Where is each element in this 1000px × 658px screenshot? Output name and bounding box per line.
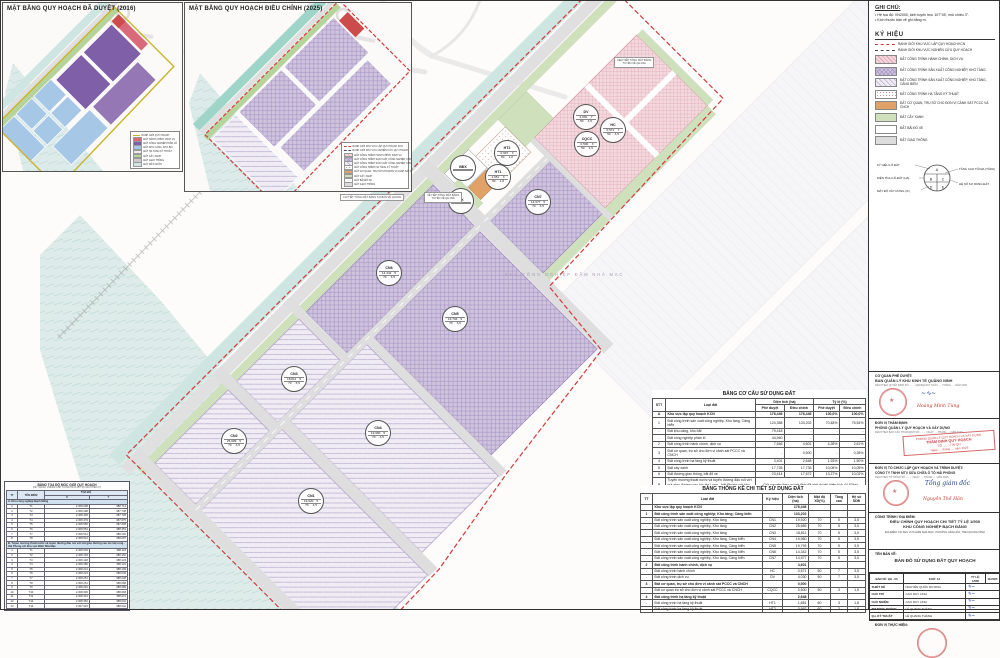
diagram-label-density: MẬT ĐỘ XÂY DỰNG (%) <box>877 188 910 193</box>
approving-agency-name: BAN QUẢN LÝ KHU KINH TẾ QUẢNG NINH <box>875 379 995 383</box>
legend-label: RANH GIỚI QUY HOẠCH <box>142 134 170 137</box>
approval-signer-name: Hoàng Minh Tùng <box>917 404 959 409</box>
legend-label: ĐẤT CÔNG TRÌNH SẢN XUẤT CÔNG NGHIỆP, KHO… <box>355 158 413 161</box>
legend-label: ĐẤT BÃI ĐỖ XE <box>900 127 923 131</box>
legend-label: RANH GIỚI KHU VỰC NGHIÊN CỨU QUY HOẠCH <box>353 149 409 152</box>
lot-far: 1,8 <box>509 156 513 160</box>
study-area-label: KHU CÔNG NGHIỆP ĐẦM NHÀ MẠC <box>505 272 624 277</box>
inset-2016: MẶT BẰNG QUY HOẠCH ĐÃ DUYỆT (2016) <box>2 2 183 172</box>
legend-label: ĐẤT CÔNG TRÌNH SẢN XUẤT CÔNG NGHIỆP, KHO… <box>355 162 413 165</box>
lot-circle: CN1 19,9205 703,5 <box>298 488 324 514</box>
legend-row: ĐẤT CÔNG TRÌNH HÀNH CHÍNH, DỊCH VỤ <box>875 55 995 64</box>
project-block: CÔNG TRÌNH / ĐỊA ĐIỂM: ĐIỀU CHỈNH QUY HO… <box>869 512 1000 549</box>
lot-density: 70 <box>449 322 452 326</box>
appraisal-unit-heading: ĐƠN VỊ THẨM ĐỊNH: <box>875 421 995 425</box>
lot-circle: DV 4,0307 503,5 <box>573 104 599 130</box>
lot-circle: CN3 18,8115 703,5 <box>281 366 307 392</box>
legend-swatch <box>875 136 897 145</box>
legend-label: ĐẤT GIAO THÔNG <box>355 183 376 186</box>
project-location: ĐỊA ĐIỂM: TẠI KHU VỰC ĐẦM NHÀ MẠC, PHƯỜN… <box>875 531 995 534</box>
coord-row: 13 T13 2.307.915 388.042 <box>7 604 128 609</box>
legend-label: ĐẤT GIAO THÔNG <box>900 139 928 143</box>
legend-label: ĐẤT BÃI ĐỖ XE <box>355 179 372 182</box>
signature-row: Q.L KỸ THUẬT LÊ QUANG THÀNH ✎~ <box>870 612 1000 619</box>
legend-swatch <box>875 55 897 64</box>
legend-row: ĐẤT CÔNG TRÌNH HẠ TẦNG KỸ THUẬT <box>875 90 995 99</box>
lot-circle: CN5 19,7935 703,5 <box>442 306 468 332</box>
coordinate-table: BẢNG TỌA ĐỘ MỐC GIỚI QUY HOẠCH (HỆ TỌA Đ… <box>4 481 130 611</box>
lot-far: 3,5 <box>391 276 395 280</box>
meta-date: 11/2025 <box>986 574 1000 584</box>
inset-2016-legend: RANH GIỚI QUY HOẠCH ĐẤT HÀNH CHÍNH, DỊCH… <box>130 131 180 170</box>
legend-swatch <box>133 162 142 167</box>
legend-label: ĐẤT CƠ QUAN, TRỤ SỞ CHO ĐƠN VỊ CẢNH SÁT … <box>355 170 413 173</box>
lot-far: 1,5 <box>589 147 593 151</box>
h-heso: Hệ số SDĐ <box>848 494 866 505</box>
submitting-unit-note: KÈM THEO TỜ TRÌNH SỐ: ........ NGÀY ....… <box>875 476 995 479</box>
h-tt: TT <box>641 494 653 505</box>
legend-row: ĐẤT GIAO THÔNG <box>344 182 406 186</box>
lot-far: 3,5 <box>540 205 544 209</box>
callout-line2: TUYẾN VỀ QH-03A <box>617 62 651 65</box>
lot-density: 70 <box>228 444 231 448</box>
legend-swatch <box>875 90 897 99</box>
signature-row: TRƯỞNG PHÒNG LÊ QUANG THÀNH ✎~ <box>870 605 1000 612</box>
meta-paper: KHỔ: A1 <box>904 574 966 584</box>
legend-label: ĐẤT KHU CẢNG, KHO BÃI <box>144 146 173 149</box>
legend-label: ĐẤT GIAO THÔNG <box>144 159 165 162</box>
h-tangcao: Tầng cao <box>831 494 848 505</box>
diagram-label-symbol: KÝ HIỆU LÔ ĐẤT <box>877 162 900 167</box>
lot-circle: BĐX <box>450 155 476 181</box>
legend-label: ĐẤT CÂY XANH <box>355 175 373 178</box>
legend-label: ĐẤT CÔNG TRÌNH SẢN XUẤT CÔNG NGHIỆP, KHO… <box>900 69 986 73</box>
h-loaidat: Loại đất <box>666 399 756 412</box>
approval-signature: ~∿~ <box>921 390 936 397</box>
h-kyhieu: Ký hiệu <box>763 494 783 505</box>
legend-title: KÝ HIỆU <box>875 31 995 40</box>
lot-density: 70 <box>305 504 308 508</box>
submitting-unit-name: CÔNG TY TNHH MTV SỬA CHỮA Ô TÔ HẢI PHÒNG <box>875 471 995 475</box>
coord-h-ten: TÊN ĐIỂM <box>18 491 45 500</box>
approving-agency-note: KÈM THEO QUYẾT ĐỊNH SỐ: ......../QĐ-BQLK… <box>875 384 995 387</box>
h-matdo: Mật độ XD(%) <box>809 494 831 505</box>
planning-drawing-sheet: { "notes": { "title": "GHI CHÚ:", "items… <box>0 0 1000 610</box>
stamp-star-icon: ★ <box>889 397 894 404</box>
legend-row: RANH GIỚI KHU VỰC LẬP QUY HOẠCH KCN <box>875 43 995 47</box>
note-units: • Kích thước bản vẽ ghi bằng m. <box>875 18 995 23</box>
legend-row: ĐẤT CÔNG TRÌNH SẢN XUẤT CÔNG NGHIỆP, KHO… <box>875 78 995 87</box>
inset-2025: MẶT BẰNG QUY HOẠCH ĐIỀU CHỈNH (2025) RAN… <box>184 2 412 192</box>
legend-row: RANH GIỚI KHU VỰC NGHIÊN CỨU QUY HOẠCH <box>875 49 995 53</box>
submitting-unit-heading: ĐƠN VỊ TỔ CHỨC LẬP QUY HOẠCH VÀ TRÌNH DU… <box>875 466 995 470</box>
diagram-label-floors: TẦNG CAO TỐI ĐA (TẦNG) <box>959 166 995 171</box>
implementing-unit-stamp <box>917 628 947 658</box>
h-stt: STT <box>653 399 666 412</box>
legend-swatch <box>875 67 897 76</box>
structure-row: 1 Đất công trình sản xuất công nghiệp, K… <box>653 418 866 429</box>
lot-far: 3,5 <box>236 444 240 448</box>
lot-circle: CQCC 0,5003 501,5 <box>574 131 600 157</box>
lot-density: 70 <box>383 276 386 280</box>
legend-swatch <box>344 182 353 187</box>
meta-scale: TỶ LỆ: 1/500 <box>966 574 986 584</box>
legend-label: ĐẤT CÔNG TRÌNH HÀNH CHÍNH, DỊCH VỤ <box>900 58 963 62</box>
h-dt: Diện tích (ha) <box>783 494 809 505</box>
appraisal-unit-name: PHÒNG QUẢN LÝ QUY HOẠCH VÀ XÂY DỰNG <box>875 426 995 430</box>
legend-label: ĐẤT HÀNH CHÍNH, DỊCH VỤ <box>144 138 176 141</box>
legend-row: ĐẤT CÂY XANH <box>875 113 995 122</box>
legend-row: ĐẤT CÔNG TRÌNH SẢN XUẤT CÔNG NGHIỆP, KHO… <box>875 67 995 76</box>
signature-table-block: BẢN VẼ: QH - 03 KHỔ: A1 TỶ LỆ: 1/500 11/… <box>869 572 1000 620</box>
legend-label: RANH GIỚI KHU VỰC NGHIÊN CỨU QUY HOẠCH <box>898 49 972 53</box>
map-callout: VỀ TIẾP TỔNG MẶT BẰNG TUYẾN VỀ QH-03A <box>424 192 462 203</box>
diagram-letter-d: D <box>930 185 933 189</box>
drawing-name-heading: TÊN BẢN VẼ: <box>875 552 995 556</box>
legend-row: RANH GIỚI KHU VỰC LẬP QUY HOẠCH KCN <box>344 145 406 149</box>
lot-symbol-diagram: KÝ HIỆU LÔ ĐẤT DIỆN TÍCH LÔ ĐẤT (HA) MẬT… <box>875 152 995 204</box>
lot-density: 50 <box>580 120 583 124</box>
lot-circle: CN7 14,9775 703,5 <box>525 189 551 215</box>
lot-far: 3,5 <box>615 133 619 137</box>
inset-2025-legend: RANH GIỚI KHU VỰC LẬP QUY HOẠCH KCN RANH… <box>341 142 409 189</box>
lot-circle: CN4 19,9605 703,5 <box>365 420 391 446</box>
lot-circle: HT2 0,9973 601,8 <box>494 140 520 166</box>
legend-swatch <box>875 50 895 51</box>
legend-row: ĐẤT GIAO THÔNG <box>875 136 995 145</box>
meta-drawing-no: BẢN VẼ: QH - 03 <box>870 574 904 584</box>
legend-swatch <box>875 125 897 134</box>
inset-2025-note: CHI TIẾT TỔNG MẶT BẰNG TẠI BẢN VẼ QH-03A <box>340 194 404 201</box>
legend-swatch <box>875 44 895 45</box>
implementing-unit-heading: ĐƠN VỊ THỰC HIỆN: <box>875 623 995 627</box>
legend-label: ĐẤT CÔNG TRÌNH HẠ TẦNG KỸ THUẬT <box>355 166 399 169</box>
lot-circle: CN2 25,6895 703,5 <box>221 428 247 454</box>
legend-swatch <box>875 113 897 122</box>
sidebar: GHI CHÚ: • Hệ tọa độ: VN2000, kinh tuyến… <box>868 0 1000 610</box>
notes-title: GHI CHÚ: <box>875 5 995 11</box>
signature-row: THIẾT KẾ NGUYỄN QUỐC DƯƠNG ✎~ <box>870 584 1000 591</box>
signature-row: CHỦ NHIỆM CAO DUY LINH ✎~ <box>870 598 1000 605</box>
lot-far: 3,5 <box>380 436 384 440</box>
lot-circle: HC 0,5717 503,5 <box>600 117 626 143</box>
legend-label: ĐẤT CÔNG NGHIỆP PHÂN LÔ <box>144 142 178 145</box>
legend-swatch <box>875 101 897 110</box>
legend-swatch <box>344 146 351 147</box>
approving-agency-block: CƠ QUAN PHÊ DUYỆT: BAN QUẢN LÝ KHU KINH … <box>869 371 1000 418</box>
legend-label: ĐẤT CƠ QUAN, TRỤ SỞ CHO ĐƠN VỊ CẢNH SÁT … <box>900 102 995 109</box>
landuse-detail-table: BẢNG THỐNG KÊ CHI TIẾT SỬ DỤNG ĐẤT TT Lo… <box>640 485 866 613</box>
legend-label: ĐẤT CÂY XANH <box>144 155 162 158</box>
company-signer-name: Nguyễn Thế Hân <box>923 497 963 502</box>
map-callout: XEM TIẾP TỔNG MẶT BẰNG TUYẾN VỀ QH-03A <box>614 57 654 68</box>
appraisal-unit-block: ĐƠN VỊ THẨM ĐỊNH: PHÒNG QUẢN LÝ QUY HOẠC… <box>869 418 1000 463</box>
appraisal-stamp-line2: Ngày .... tháng .... năm 2025 <box>930 446 968 453</box>
approving-agency-heading: CƠ QUAN PHÊ DUYỆT: <box>875 374 995 378</box>
lot-circle: CN6 14,3425 703,5 <box>376 260 402 286</box>
legend-label: ĐẤT CÔNG TRÌNH HẠ TẦNG KỸ THUẬT <box>900 93 959 97</box>
detail-table-title: BẢNG THỐNG KÊ CHI TIẾT SỬ DỤNG ĐẤT <box>640 486 866 492</box>
legend-label: ĐẤT CÂY XANH <box>900 116 923 120</box>
lot-far: 3,5 <box>588 120 592 124</box>
drawing-meta-row: BẢN VẼ: QH - 03 KHỔ: A1 TỶ LỆ: 1/500 11/… <box>870 574 1000 584</box>
lot-density: 60 <box>492 180 495 184</box>
company-signature: Tổng giám đốc <box>925 480 970 487</box>
legend-label: ĐẤT HẠ TẦNG KỸ THUẬT <box>144 150 172 153</box>
legend-swatch <box>133 135 140 136</box>
project-title-line2: KHU CÔNG NGHIỆP BẠCH ĐẰNG <box>875 524 995 529</box>
drawing-name-block: TÊN BẢN VẼ: BẢN ĐỒ SỬ DỤNG ĐẤT QUY HOẠCH <box>869 549 1000 572</box>
drawing-name: BẢN ĐỒ SỬ DỤNG ĐẤT QUY HOẠCH <box>875 558 995 563</box>
lot-far: 3,5 <box>457 322 461 326</box>
legend-label: ĐẤT CÔNG TRÌNH HÀNH CHÍNH, DỊCH VỤ <box>355 154 402 157</box>
coord-h-tt: TT <box>7 491 18 500</box>
structure-row: 3 Đất cơ quan, trụ sở cho đơn vị cảnh sá… <box>653 448 866 459</box>
inset-2025-title: MẶT BẰNG QUY HOẠCH ĐIỀU CHỈNH (2025) <box>189 6 322 12</box>
stamp-star-icon: ★ <box>892 488 897 495</box>
lot-far: 3,5 <box>296 382 300 386</box>
lot-far: 1,8 <box>500 180 504 184</box>
lot-circle: HT1 1,6513 601,8 <box>485 164 511 190</box>
lot-far: 3,5 <box>313 504 317 508</box>
landuse-structure-table: BẢNG CƠ CẤU SỬ DỤNG ĐẤT STT Loại đất Diệ… <box>652 390 866 493</box>
structure-table-title: BẢNG CƠ CẤU SỬ DỤNG ĐẤT <box>652 391 866 397</box>
diagram-letter-c: C <box>942 177 945 181</box>
legend-list: RANH GIỚI KHU VỰC LẬP QUY HOẠCH KCN RANH… <box>875 43 995 145</box>
diagram-label-area: DIỆN TÍCH LÔ ĐẤT (HA) <box>877 175 909 180</box>
diagram-label-far: HỆ SỐ SỬ DỤNG ĐẤT <box>959 181 989 186</box>
legend-swatch <box>875 78 897 87</box>
legend-swatch <box>344 150 351 151</box>
h-loai: Loại đất <box>653 494 763 505</box>
detail-row: - Đất công trình hạ tầng kỹ thuật HT2 0,… <box>641 606 866 612</box>
legend-label: RANH GIỚI KHU VỰC LẬP QUY HOẠCH KCN <box>898 43 965 47</box>
legend-row: ĐẤT BÃI ĐỖ XE <box>875 125 995 134</box>
lot-density: 70 <box>288 382 291 386</box>
lot-density: 70 <box>532 205 535 209</box>
legend-row: RANH GIỚI KHU VỰC NGHIÊN CỨU QUY HOẠCH <box>344 149 406 153</box>
inset-2016-title: MẶT BẰNG QUY HOẠCH ĐÃ DUYỆT (2016) <box>7 6 136 12</box>
signature-row: CHỦ TRÌ CAO DUY LINH ✎~ <box>870 591 1000 598</box>
lot-density: 50 <box>607 133 610 137</box>
coord-subtitle: (HỆ TỌA ĐỘ VN2000 KINH TUYẾN TRỤC 107°45… <box>6 487 128 489</box>
legend-row: ĐẤT MẶT NƯỚC <box>133 162 177 166</box>
lot-density: 60 <box>501 156 504 160</box>
lot-density: 70 <box>372 436 375 440</box>
callout-line2: TUYẾN VỀ QH-03A <box>427 197 459 200</box>
lot-density: 50 <box>581 147 584 151</box>
implementing-unit-block: ĐƠN VỊ THỰC HIỆN: <box>869 620 1000 641</box>
legend-row: ĐẤT CƠ QUAN, TRỤ SỞ CHO ĐƠN VỊ CẢNH SÁT … <box>875 101 995 110</box>
legend-label: ĐẤT CÔNG TRÌNH SẢN XUẤT CÔNG NGHIỆP, KHO… <box>900 79 995 86</box>
submitting-unit-block: ĐƠN VỊ TỔ CHỨC LẬP QUY HOẠCH VÀ TRÌNH DU… <box>869 463 1000 512</box>
coord-section-b: B. Tuyến mương thoát nước và tuyến đường… <box>7 541 128 549</box>
legend-label: RANH GIỚI KHU VỰC LẬP QUY HOẠCH KCN <box>353 145 403 148</box>
title-block: CƠ QUAN PHÊ DUYỆT: BAN QUẢN LÝ KHU KINH … <box>869 371 1000 641</box>
legend-label: ĐẤT MẶT NƯỚC <box>144 163 163 166</box>
